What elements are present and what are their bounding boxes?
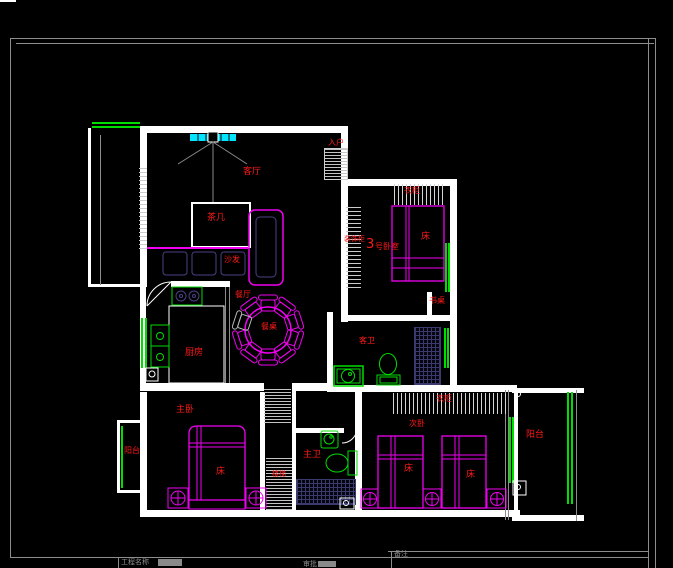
title-value-box-2 [318, 561, 336, 567]
gas-meter [146, 368, 158, 381]
room-label-coffee-table-name: 茶几 [207, 214, 225, 223]
title-field-approval: 审批 [303, 561, 317, 568]
sink-2 [151, 346, 169, 367]
title-field-project-name: 工程名称 [121, 559, 149, 566]
sink-1 [151, 325, 169, 346]
ceiling-fan-icon [178, 132, 247, 203]
room-label-master-bedroom-name: 主卧 [176, 406, 194, 415]
room-label-second-bedroom-wardrobe: 衣柜 [436, 395, 452, 403]
room-label-foyer-cabinet: 装饰柜 [344, 236, 365, 243]
title-field-remarks: 备注 [394, 551, 408, 558]
furniture-layer [0, 0, 673, 568]
floor-drain [340, 498, 354, 509]
room-label-sofa-name: 沙发 [224, 256, 240, 264]
room-label-bedroom3-number: 3 [366, 238, 374, 251]
room-label-second-bedroom-name: 次卧 [409, 420, 425, 428]
room-label-second-bedroom-bed-2: 床 [466, 471, 475, 480]
kitchen-counter [169, 306, 224, 383]
room-label-balcony-left-name: 阳台 [124, 447, 140, 455]
room-label-entry-name: 入户 [328, 139, 344, 147]
kitchen-fixtures [146, 282, 224, 383]
toilet-master [326, 454, 348, 472]
secondbedroom-furniture [361, 436, 506, 508]
room-label-desk-name: 书桌 [429, 297, 445, 305]
room-label-master-bathroom-name: 主卫 [303, 451, 321, 460]
room-label-kitchen-name: 厨房 [185, 349, 203, 358]
room-label-dining-room-name: 餐厅 [235, 291, 251, 299]
toilet-guest [380, 354, 397, 375]
room-label-living-room-name: 客厅 [243, 168, 261, 177]
coffee-table [192, 203, 250, 247]
master-bathroom-fixtures [321, 428, 357, 509]
room-label-guest-bathroom-name: 客卫 [359, 337, 375, 345]
balcony-door-details [513, 392, 526, 496]
room-label-bedroom3-bed: 床 [421, 233, 430, 242]
bedroom3-bed [392, 206, 444, 281]
room-label-bedroom3-name: 号卧室 [375, 243, 399, 251]
cad-viewport: 客厅茶几沙发入户衣柜床装饰柜3号卧室书桌餐厅餐桌厨房客卫主卫楼梯主卧床衣柜次卧床… [0, 0, 673, 568]
room-label-second-bedroom-bed-1: 床 [404, 465, 413, 474]
masterbath-door-arc [342, 428, 357, 443]
room-label-bedroom3-wardrobe: 衣柜 [404, 187, 420, 195]
room-label-master-bed: 床 [216, 468, 225, 477]
guest-bathroom-fixtures [334, 354, 400, 387]
dining-chair-gray [232, 310, 253, 333]
room-label-staircase-name: 楼梯 [272, 471, 286, 478]
title-value-box-1 [158, 559, 182, 566]
room-label-balcony-right-name: 阳台 [526, 431, 544, 440]
room-label-dining-table-name: 餐桌 [261, 323, 277, 331]
